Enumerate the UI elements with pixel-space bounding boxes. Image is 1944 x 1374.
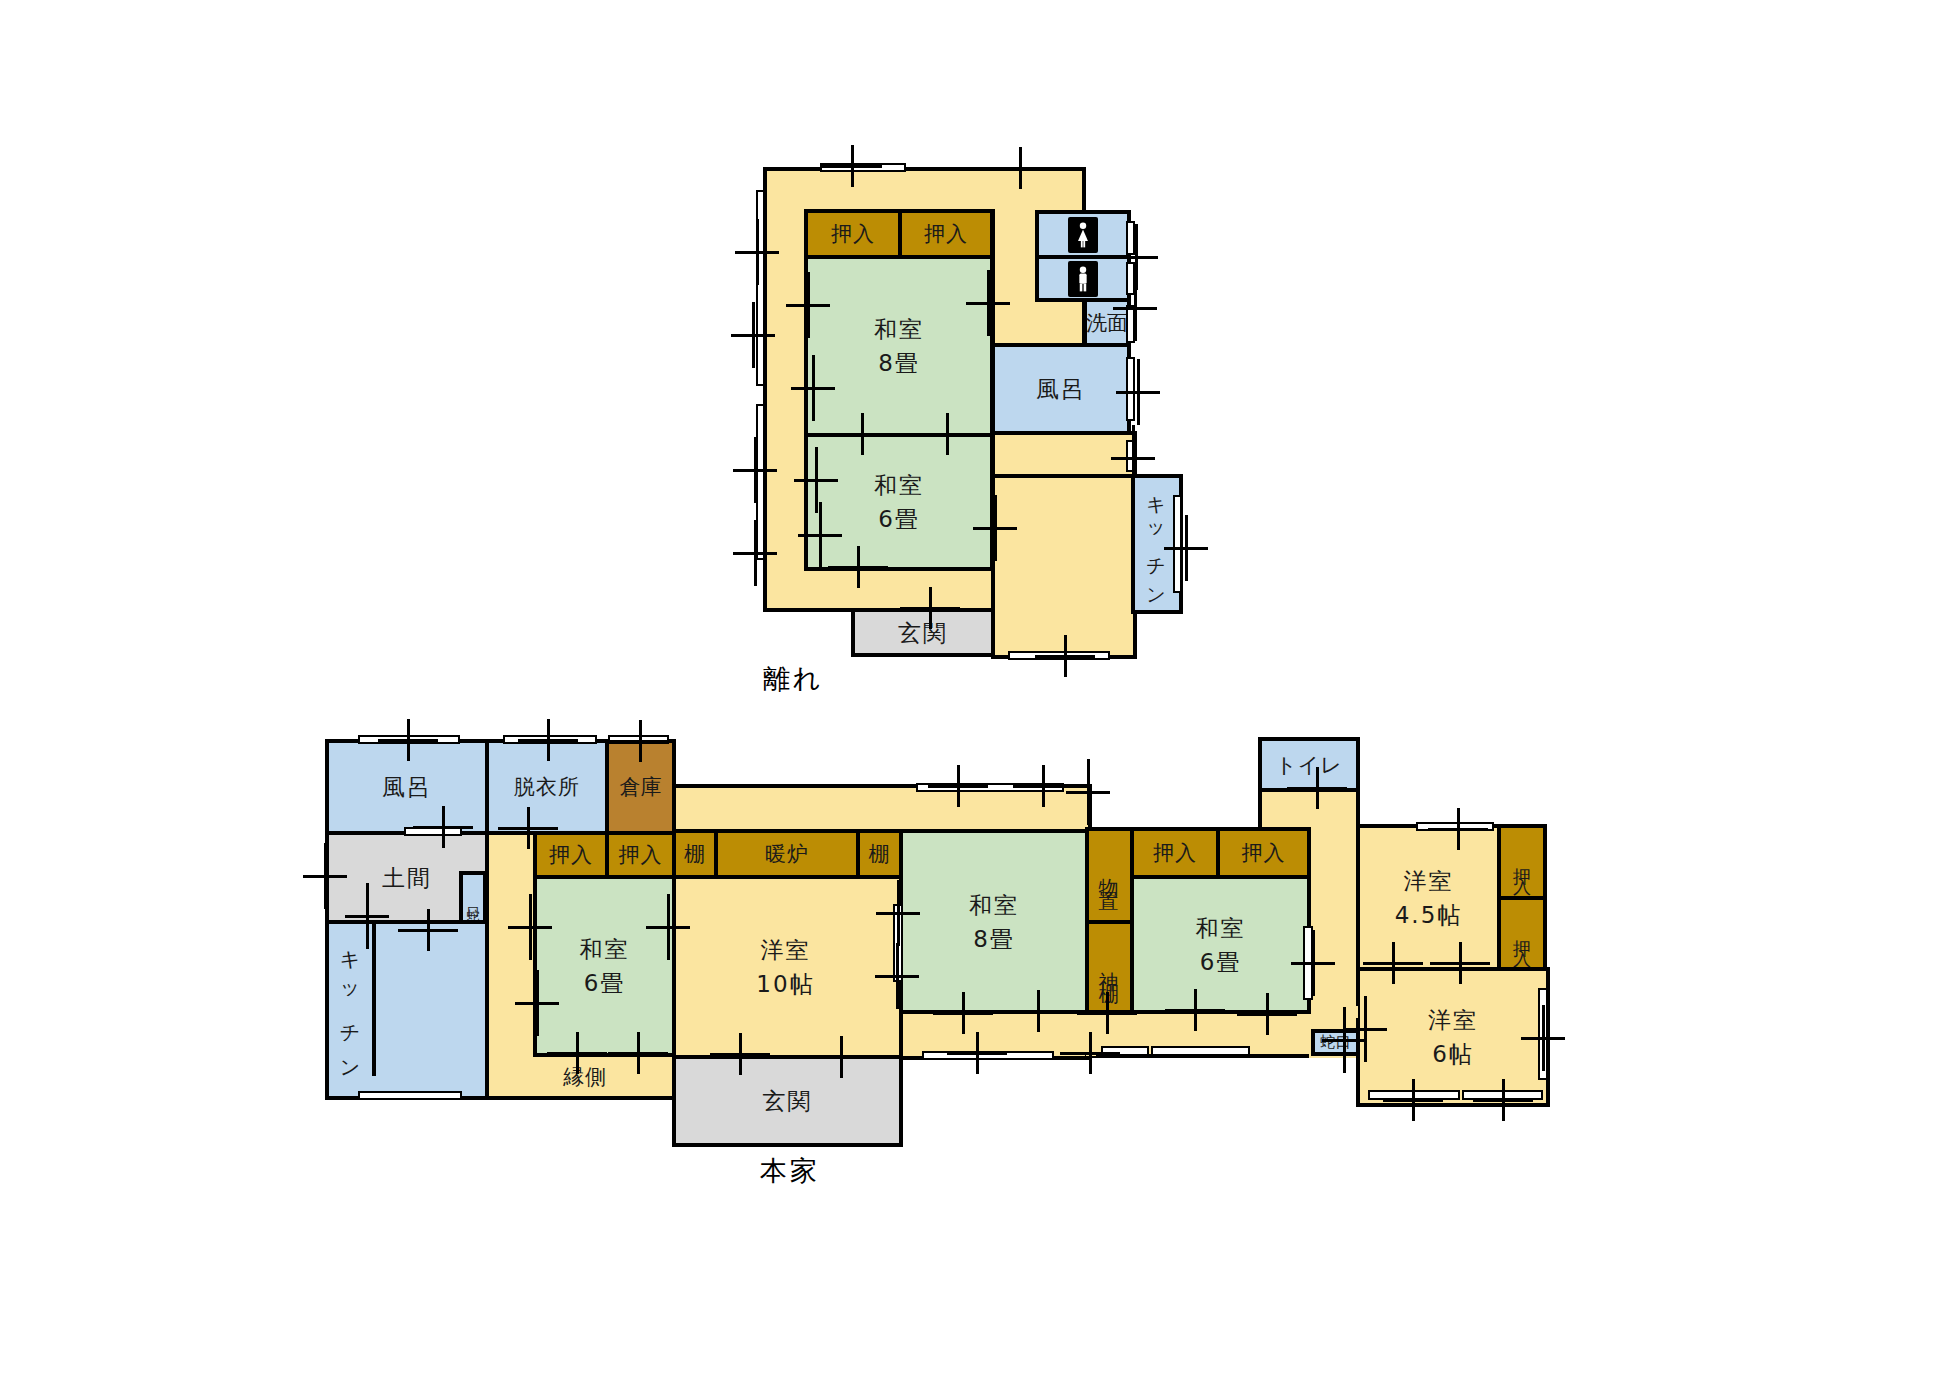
fireplace-label: 暖炉 [765,840,809,868]
room-name: 玄関 [898,616,948,650]
wall-segment [899,1012,903,1058]
room-size: 6畳 [584,966,626,1000]
honke-monooki: 物置 [1085,827,1134,924]
hanare-closet-1: 押入 [804,209,902,259]
hanare-genkan: 玄関 [851,608,995,657]
shelf-label: 棚 [869,840,891,868]
window [358,1091,462,1100]
room-name: キッチン [1144,483,1170,606]
window [1173,495,1182,593]
honke-shelf-2: 棚 [856,829,903,879]
hanare-washitsu-6jo: 和室 6畳 [804,433,994,571]
closet-label: 押入 [831,220,875,248]
hanare-closet-2: 押入 [898,209,994,259]
window [756,404,765,560]
honke-yoshitsu-4-5jo: 洋室 4.5帖 [1356,824,1501,971]
floorplan-canvas: 押入 押入 和室 8畳 和室 6畳 洗面 風呂 [0,0,1944,1374]
honke-closet-v2: 押入 [1497,896,1547,971]
honke-faucet-doma: 蛇口 [459,871,487,924]
shelf-label: 棚 [684,840,706,868]
faucet-label: 蛇口 [1321,1033,1351,1052]
closet-label: 押入 [1242,839,1286,867]
honke-washitsu-8jo: 和室 8畳 [899,829,1089,1014]
closet-label: 押入 [1510,854,1534,870]
toilet-female-icon [1068,217,1098,253]
closet-label: 押入 [1153,839,1197,867]
honke-danro: 暖炉 [714,829,860,879]
honke-washitsu-6jo-east: 和室 6畳 [1130,875,1311,1014]
room-name: 和室 [874,312,924,346]
wall-segment [991,474,1137,478]
closet-label: 押入 [549,841,593,869]
room-name: 洋室 [1404,864,1454,898]
closet-label: 押入 [924,220,968,248]
hanare-furo: 風呂 [991,343,1131,435]
honke-genkan: 玄関 [672,1055,903,1147]
hanare-senmen: 洗面 [1083,298,1131,347]
room-name: 和室 [1196,911,1246,945]
hanare-caption: 離れ [763,661,824,697]
honke-kamidana: 神棚 [1085,920,1134,1014]
hanare-toilet-male [1035,255,1131,302]
room-name: 土間 [382,861,432,895]
closet-label: 押入 [1510,926,1534,942]
room-name: 物置 [1096,862,1123,890]
floor-patch [1313,1006,1358,1018]
room-name: 和室 [580,932,630,966]
room-size: 8畳 [973,922,1015,956]
room-size: 4.5帖 [1395,898,1463,932]
honke-caption: 本家 [760,1153,820,1189]
room-name: 倉庫 [620,773,662,801]
room-name: 風呂 [382,770,432,804]
honke-washitsu-6jo-west: 和室 6畳 [533,875,676,1057]
honke-closet-e2: 押入 [1216,827,1311,879]
room-name: 玄関 [763,1084,813,1118]
room-name: 洗面 [1086,309,1128,337]
hanare-washitsu-8jo: 和室 8畳 [804,255,994,437]
room-size: 6畳 [1200,945,1242,979]
room-name: 神棚 [1096,955,1123,979]
honke-closet-v1: 押入 [1497,824,1547,900]
toilet-male-icon [1068,261,1098,297]
room-size: 8畳 [878,346,920,380]
floor-patch [989,171,997,209]
room-name: 和室 [969,888,1019,922]
room-name: トイレ [1275,751,1342,779]
honke-closet-e1: 押入 [1130,827,1220,879]
hanare-southeast-wing [991,431,1137,659]
hanare-toilet-female [1035,210,1131,259]
room-size: 6帖 [1432,1037,1474,1071]
room-name: 脱衣所 [514,773,580,801]
room-size: 6畳 [878,502,920,536]
window [1151,1046,1250,1056]
honke-closet-w1: 押入 [533,831,609,879]
room-name: 和室 [874,468,924,502]
honke-toilet: トイレ [1258,737,1360,792]
honke-faucet-2: 蛇口 [1311,1029,1360,1056]
closet-label: 押入 [619,841,663,869]
window [1126,357,1135,421]
wall-segment [372,920,376,1076]
room-name: 風呂 [1036,372,1086,406]
room-name: 洋室 [1428,1003,1478,1037]
honke-kitchen-label: キッチン [330,932,372,1088]
honke-closet-w2: 押入 [605,831,676,879]
honke-toilet-hall [1309,831,1360,1058]
honke-shelf-1: 棚 [672,829,718,879]
honke-yoshitsu-10jo: 洋室 10帖 [676,879,895,1055]
honke-engawa-label: 縁側 [545,1060,625,1094]
